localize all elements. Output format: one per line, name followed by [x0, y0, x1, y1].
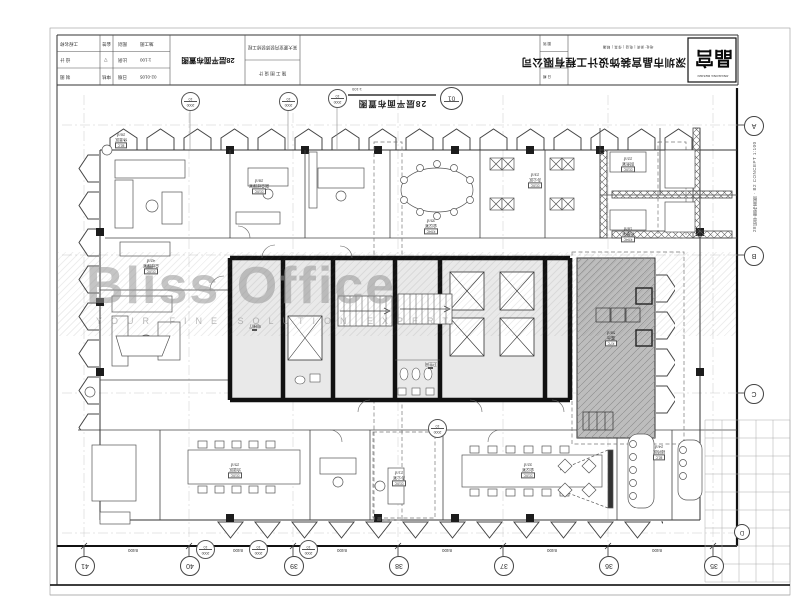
grid-bubble-40: 40 [180, 556, 200, 576]
grid-bubble-35: 35 [704, 556, 724, 576]
titleblock-drawing-title: 28层平面布置图 [176, 55, 240, 66]
plan-scale: 1:100 [352, 87, 362, 92]
titleblock-field: 图别 [118, 41, 127, 46]
room-label: D10C副总经理室28㎡ [236, 178, 282, 194]
room-label: B1C接待区24㎡ [636, 444, 682, 460]
room-label: K04C档案室18㎡ [605, 226, 651, 242]
titleblock-project-line: 施 工 图 设 计 [247, 70, 298, 76]
titleblock-field: 1:100 [140, 57, 151, 62]
grid-bubble-36: 36 [599, 556, 619, 576]
room-label: D10C办公室21㎡ [376, 470, 422, 486]
grid-bubble-41: 41 [75, 556, 95, 576]
callout-bubble: 200010 [299, 540, 318, 559]
grid-bubble-A: A [744, 116, 764, 136]
company-logo: 晶宫 [697, 48, 733, 67]
room-label: D10C财务室22㎡ [605, 156, 651, 172]
company-name: 深圳市晶宫装饰设计工程有限公司 [570, 55, 686, 70]
room-label: D10C总经理室42㎡ [128, 258, 174, 274]
callout-bubble: 200010 [428, 419, 447, 438]
titleblock-field: 审核 [102, 74, 111, 79]
grid-bubble-D: D [734, 524, 750, 540]
dim-text: 8400 [652, 548, 662, 553]
grid-bubble-38: 38 [389, 556, 409, 576]
titleblock-field: 比例 [118, 57, 127, 62]
grid-bubble-B: B [744, 246, 764, 266]
callout-bubble: 200010 [196, 540, 215, 559]
dim-text: 8400 [128, 548, 138, 553]
titleblock-field: 制 图 [60, 74, 70, 79]
room-label: D10C办公区23㎡ [512, 172, 558, 188]
floor-plan-linework [0, 0, 800, 600]
drawing-sheet: Bliss Office YOUR FINE SOLUTION EXPERT 工… [0, 0, 800, 600]
dim-text: 8400 [547, 548, 557, 553]
titleblock-field: ▽ [104, 57, 107, 62]
titleblock-info: 日 期 [543, 74, 551, 78]
dim-text: 8400 [233, 548, 243, 553]
room-label: 卫生间 [408, 362, 454, 369]
titleblock-field: 设 计 [60, 57, 70, 62]
callout-bubble: 200010 [249, 540, 268, 559]
company-contact: 地址·深圳 | 电话 | 传真 | 邮编 [572, 44, 684, 49]
plan-number: 01 [448, 94, 455, 101]
room-label: D10C会议室32㎡ [505, 462, 551, 478]
company-logo-sub: JINGGONG DESIGN [691, 74, 735, 78]
plan-title: 28层平面布置图 [348, 98, 436, 110]
dim-text: 8400 [337, 548, 347, 553]
plan-number-bubble: 01 [440, 87, 463, 110]
titleblock-field: 工程名称 [60, 41, 78, 46]
room-label: D10C洽谈区25㎡ [212, 462, 258, 478]
grid-bubble-C: C [744, 384, 764, 404]
titleblock-project-line: 某大厦室内装饰装修工程 [247, 44, 298, 50]
titleblock-field: 施工图 [140, 41, 154, 46]
grid-bubble-37: 37 [494, 556, 514, 576]
titleblock-field: 会签 [102, 41, 111, 46]
room-label: B1C休息区26㎡ [98, 132, 144, 148]
titleblock-field: 02-0105 [140, 74, 157, 79]
titleblock-field: 日期 [118, 74, 127, 79]
callout-bubble: 200010 [181, 92, 200, 111]
grid-bubble-39: 39 [284, 556, 304, 576]
titleblock-info: 图 别 [543, 41, 551, 45]
dim-text: 8400 [442, 548, 452, 553]
room-label: K04C会议室35㎡ [408, 218, 454, 234]
core [210, 226, 630, 442]
room-label: K7C露台58㎡ [588, 330, 634, 346]
room-label: 电梯厅 [232, 324, 278, 331]
terrace-block [577, 258, 675, 438]
callout-bubble: 200010 [328, 89, 347, 108]
callout-bubble: 200010 [279, 92, 298, 111]
